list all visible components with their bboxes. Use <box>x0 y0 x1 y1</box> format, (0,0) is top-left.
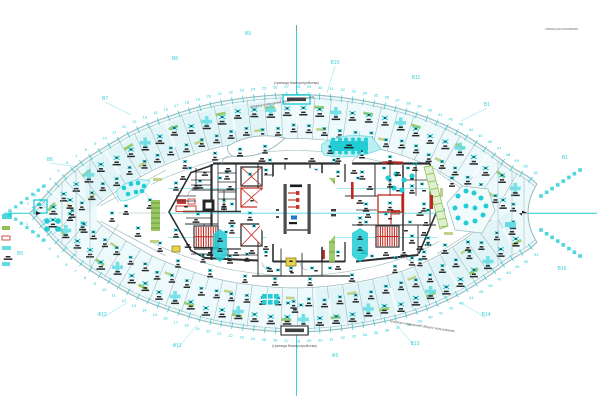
svg-text:В9: В9 <box>245 31 251 37</box>
svg-text:27: 27 <box>284 338 289 343</box>
svg-text:В15: В15 <box>558 266 567 272</box>
svg-text:24: 24 <box>251 336 256 341</box>
svg-text:13: 13 <box>132 303 137 308</box>
svg-text:16: 16 <box>163 106 168 111</box>
svg-text:51: 51 <box>534 170 539 175</box>
svg-text:26: 26 <box>273 85 278 90</box>
svg-text:47: 47 <box>497 277 502 282</box>
svg-text:42: 42 <box>449 306 454 311</box>
svg-text:33: 33 <box>352 334 357 339</box>
svg-text:Ф12: Ф12 <box>97 312 107 318</box>
svg-text:51: 51 <box>534 252 539 257</box>
svg-text:19: 19 <box>195 326 200 331</box>
svg-text:В10: В10 <box>331 60 340 66</box>
svg-text:41: 41 <box>439 310 444 315</box>
svg-text:41: 41 <box>438 112 443 117</box>
svg-text:46: 46 <box>488 283 493 288</box>
svg-text:49: 49 <box>514 158 519 163</box>
svg-text:Ф11: Ф11 <box>173 343 182 349</box>
svg-text:50: 50 <box>524 259 529 264</box>
svg-text:50: 50 <box>523 163 528 168</box>
svg-text:46: 46 <box>488 139 493 144</box>
svg-text:30: 30 <box>318 337 323 342</box>
svg-text:19: 19 <box>195 96 200 101</box>
svg-text:48: 48 <box>506 152 511 157</box>
svg-text:44: 44 <box>469 127 474 132</box>
svg-text:39: 39 <box>417 104 422 109</box>
svg-text:18: 18 <box>184 323 189 328</box>
svg-text:20: 20 <box>206 329 211 334</box>
svg-text:13: 13 <box>132 119 137 124</box>
svg-text:32: 32 <box>340 335 345 340</box>
svg-text:36: 36 <box>385 328 390 333</box>
svg-text:24: 24 <box>251 86 256 91</box>
svg-text:40: 40 <box>428 315 433 320</box>
svg-text:Ф5: Ф5 <box>332 353 339 359</box>
svg-text:В1: В1 <box>484 102 490 108</box>
svg-text:45: 45 <box>479 289 484 294</box>
svg-text:В8: В8 <box>172 56 178 62</box>
svg-text:20: 20 <box>206 94 211 99</box>
svg-text:25: 25 <box>262 85 267 90</box>
svg-text:38: 38 <box>406 100 411 105</box>
svg-text:30: 30 <box>318 85 323 90</box>
svg-text:10: 10 <box>102 287 107 292</box>
svg-text:В5: В5 <box>17 251 23 257</box>
svg-text:17: 17 <box>174 319 179 324</box>
svg-text:35: 35 <box>374 92 379 97</box>
svg-text:33: 33 <box>351 89 356 94</box>
svg-text:48: 48 <box>506 270 511 275</box>
svg-text:31: 31 <box>329 86 334 91</box>
svg-text:14: 14 <box>142 308 147 313</box>
svg-text:В11: В11 <box>412 75 421 81</box>
svg-text:В7: В7 <box>102 96 108 102</box>
svg-text:47: 47 <box>497 146 502 151</box>
svg-text:12: 12 <box>122 124 127 129</box>
svg-text:23: 23 <box>240 335 245 340</box>
svg-text:схема расположения: схема расположения <box>545 27 578 31</box>
svg-text:49: 49 <box>515 264 520 269</box>
svg-text:32: 32 <box>340 87 345 92</box>
svg-text:14: 14 <box>142 114 147 119</box>
svg-text:(граница благоустройства): (граница благоустройства) <box>274 81 318 85</box>
svg-text:21: 21 <box>217 91 222 96</box>
svg-text:В13: В13 <box>411 341 420 347</box>
svg-text:22: 22 <box>229 89 234 94</box>
svg-text:21: 21 <box>217 331 222 336</box>
svg-text:10: 10 <box>102 135 107 140</box>
svg-text:22: 22 <box>228 333 233 338</box>
svg-text:23: 23 <box>240 88 245 93</box>
svg-text:44: 44 <box>469 295 474 300</box>
svg-text:42: 42 <box>448 116 453 121</box>
svg-text:34: 34 <box>362 90 367 95</box>
svg-text:36: 36 <box>384 95 389 100</box>
svg-text:31: 31 <box>329 336 334 341</box>
svg-text:26: 26 <box>273 338 278 343</box>
svg-text:40: 40 <box>428 108 433 113</box>
svg-text:34: 34 <box>363 332 368 337</box>
svg-text:29: 29 <box>307 338 312 343</box>
svg-text:12: 12 <box>121 298 126 303</box>
svg-text:35: 35 <box>374 330 379 335</box>
svg-text:15: 15 <box>153 110 158 115</box>
svg-text:В1: В1 <box>562 155 568 161</box>
svg-text:45: 45 <box>478 133 483 138</box>
svg-text:17: 17 <box>174 103 179 108</box>
svg-text:43: 43 <box>459 122 464 127</box>
svg-text:37: 37 <box>395 97 400 102</box>
svg-text:16: 16 <box>163 316 168 321</box>
svg-text:15: 15 <box>153 312 158 317</box>
svg-text:18: 18 <box>185 99 190 104</box>
svg-text:(граница благоустройства): (граница благоустройства) <box>272 344 316 348</box>
svg-text:В6: В6 <box>47 157 53 163</box>
svg-text:28: 28 <box>296 338 301 343</box>
svg-text:25: 25 <box>262 337 267 342</box>
svg-text:В14: В14 <box>482 312 491 318</box>
